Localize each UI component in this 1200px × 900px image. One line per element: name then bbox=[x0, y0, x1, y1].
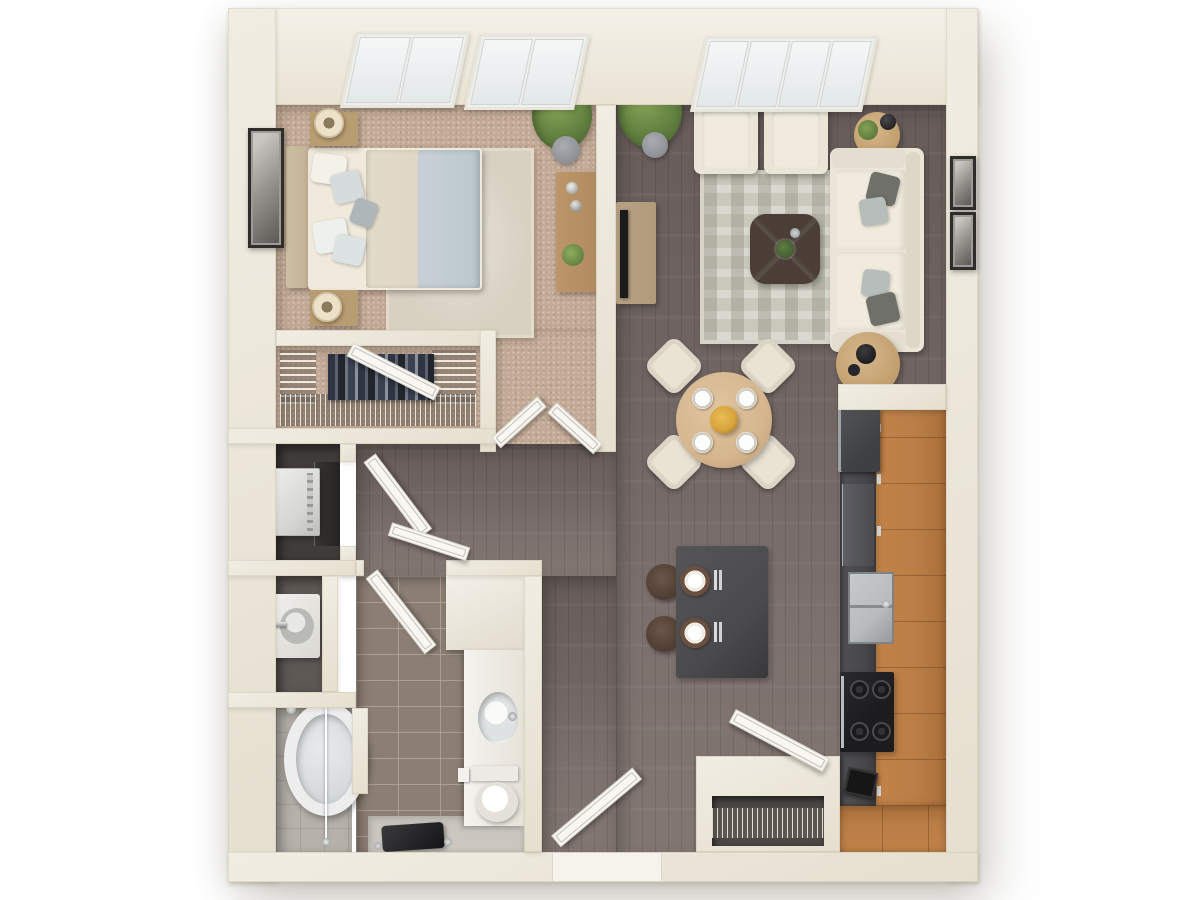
bed-headboard bbox=[286, 146, 308, 288]
living-wall-frame bbox=[950, 156, 976, 210]
toilet-tank bbox=[470, 766, 518, 781]
bathroom-sink bbox=[478, 692, 518, 744]
bathroom-bench bbox=[381, 822, 445, 852]
dining-centerpiece-flowers bbox=[710, 406, 738, 434]
floor-plan-stage bbox=[0, 0, 1200, 900]
laundry-east-wall-stub bbox=[340, 444, 356, 462]
end-table-decor-small bbox=[848, 364, 860, 376]
table-lamp-black bbox=[880, 114, 896, 130]
sofa-pillow-light bbox=[858, 196, 889, 227]
armchair-seat bbox=[772, 110, 820, 168]
bedroom-window bbox=[340, 32, 470, 108]
glass-shower-panel bbox=[325, 702, 327, 844]
living-plant-pot bbox=[642, 132, 668, 158]
bedroom-dresser bbox=[556, 172, 598, 292]
end-table-decor bbox=[856, 344, 876, 364]
stove-handle bbox=[841, 676, 844, 748]
stove-burner bbox=[872, 722, 891, 741]
shower-room-east-wall bbox=[352, 708, 368, 794]
glass-panel-hinge bbox=[322, 838, 330, 846]
bedroom-south-wall bbox=[276, 330, 496, 346]
stove-burner bbox=[850, 722, 869, 741]
bedroom-plant-pot bbox=[552, 136, 580, 164]
kitchen-half-wall bbox=[838, 384, 946, 410]
kitchen-sink bbox=[848, 572, 894, 644]
sofa bbox=[830, 148, 924, 352]
island-place-setting bbox=[680, 618, 710, 648]
island-flatware bbox=[714, 622, 717, 642]
end-table-plant bbox=[858, 120, 878, 140]
tv bbox=[620, 210, 628, 298]
bed-pillow bbox=[331, 233, 366, 267]
bathroom-vanity-cabinet bbox=[446, 576, 524, 650]
coffee-table-plant-dish bbox=[776, 240, 794, 258]
hallway-floor bbox=[356, 444, 616, 576]
kitchen-cabinet-run-bottom bbox=[836, 806, 946, 852]
dining-place-setting bbox=[692, 432, 713, 453]
table-lamp-bottom bbox=[312, 292, 342, 322]
vanity-room-south-wall bbox=[228, 692, 356, 708]
bench-foot bbox=[374, 842, 382, 850]
dresser-plant bbox=[562, 244, 584, 266]
entry-closet-wire-shelf bbox=[712, 808, 824, 838]
hall-south-wall-west bbox=[228, 560, 356, 576]
bathroom-north-wall-stub bbox=[356, 560, 364, 576]
armchair-seat bbox=[702, 110, 750, 168]
toilet-bowl bbox=[476, 782, 518, 822]
dining-place-setting bbox=[692, 388, 713, 409]
bench-foot bbox=[444, 838, 452, 846]
washer-control-panel bbox=[307, 473, 313, 531]
coffee-table bbox=[750, 214, 820, 284]
bed bbox=[308, 148, 482, 290]
dresser-decor-sphere bbox=[566, 182, 578, 194]
living-room-window bbox=[690, 36, 878, 112]
bed-blanket bbox=[418, 150, 480, 288]
coffee-table-glasses bbox=[790, 228, 800, 238]
sofa-arm bbox=[832, 148, 906, 168]
stove-burner bbox=[850, 680, 869, 699]
bedroom-window bbox=[464, 34, 590, 110]
island-place-setting bbox=[680, 566, 710, 596]
front-door-threshold bbox=[552, 852, 662, 882]
bedroom-living-divider-wall bbox=[596, 105, 616, 452]
closet-south-wall bbox=[228, 428, 496, 444]
bedroom-wall-art bbox=[248, 128, 284, 248]
dining-place-setting bbox=[736, 432, 757, 453]
dishwasher bbox=[842, 484, 874, 566]
range-stove bbox=[840, 672, 894, 752]
table-lamp-top bbox=[314, 108, 344, 138]
island-flatware bbox=[714, 570, 717, 590]
living-wall-frame bbox=[950, 212, 976, 270]
stove-burner bbox=[872, 680, 891, 699]
outer-wall-right bbox=[946, 8, 978, 882]
sink-faucet bbox=[882, 600, 890, 608]
dining-place-setting bbox=[736, 388, 757, 409]
sink-faucet bbox=[508, 712, 517, 721]
vanity-room-east-wall bbox=[322, 576, 338, 692]
dresser-decor-sphere bbox=[570, 200, 582, 212]
refrigerator bbox=[838, 408, 880, 472]
bathroom-north-wall-east bbox=[446, 560, 542, 576]
bathroom-east-wall bbox=[524, 576, 542, 852]
toilet-paper-holder bbox=[458, 768, 469, 782]
sofa-back bbox=[906, 152, 920, 348]
